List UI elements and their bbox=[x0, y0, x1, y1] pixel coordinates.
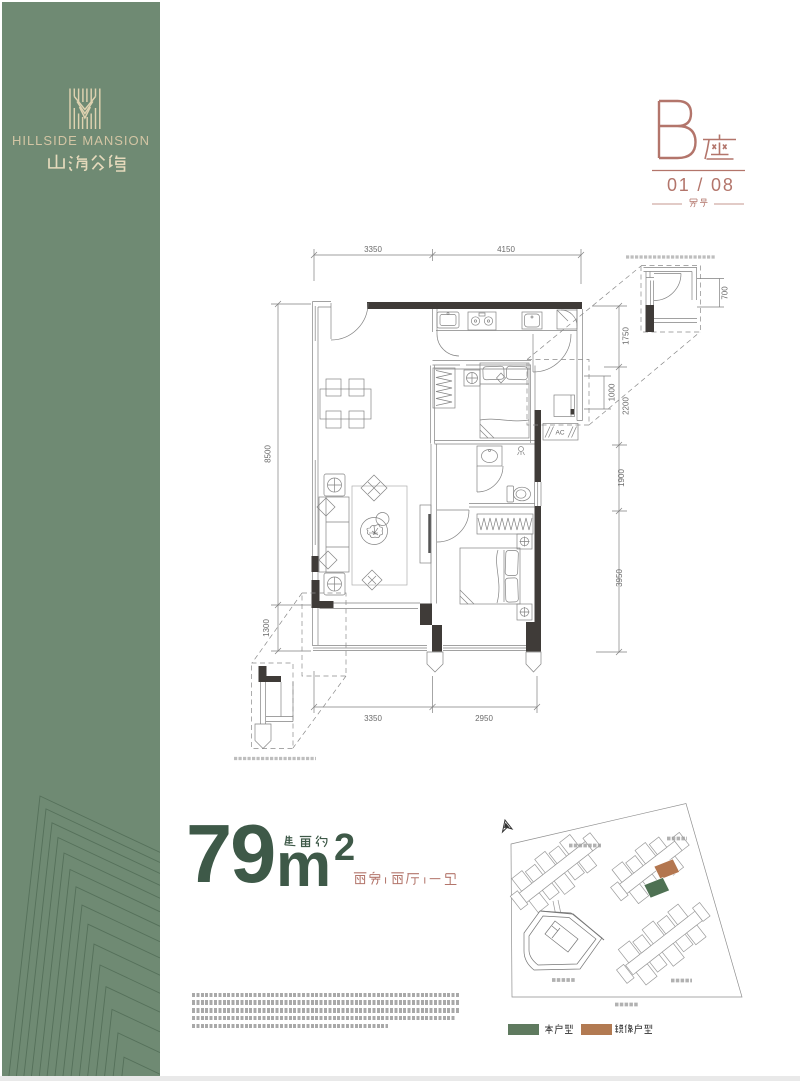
svg-text:3350: 3350 bbox=[364, 714, 382, 723]
svg-text:AC: AC bbox=[555, 430, 564, 437]
svg-text:3950: 3950 bbox=[615, 569, 624, 587]
svg-text:1000: 1000 bbox=[608, 383, 617, 401]
svg-text:2200: 2200 bbox=[622, 397, 631, 415]
svg-text:1750: 1750 bbox=[622, 327, 631, 345]
svg-text:700: 700 bbox=[721, 286, 730, 300]
svg-text:8500: 8500 bbox=[264, 445, 273, 463]
svg-text:1900: 1900 bbox=[617, 469, 626, 487]
svg-text:2950: 2950 bbox=[475, 714, 493, 723]
svg-text:3350: 3350 bbox=[364, 245, 382, 254]
svg-text:1300: 1300 bbox=[262, 619, 271, 637]
svg-text:4150: 4150 bbox=[497, 245, 515, 254]
svg-text:01 / 08: 01 / 08 bbox=[667, 175, 735, 195]
